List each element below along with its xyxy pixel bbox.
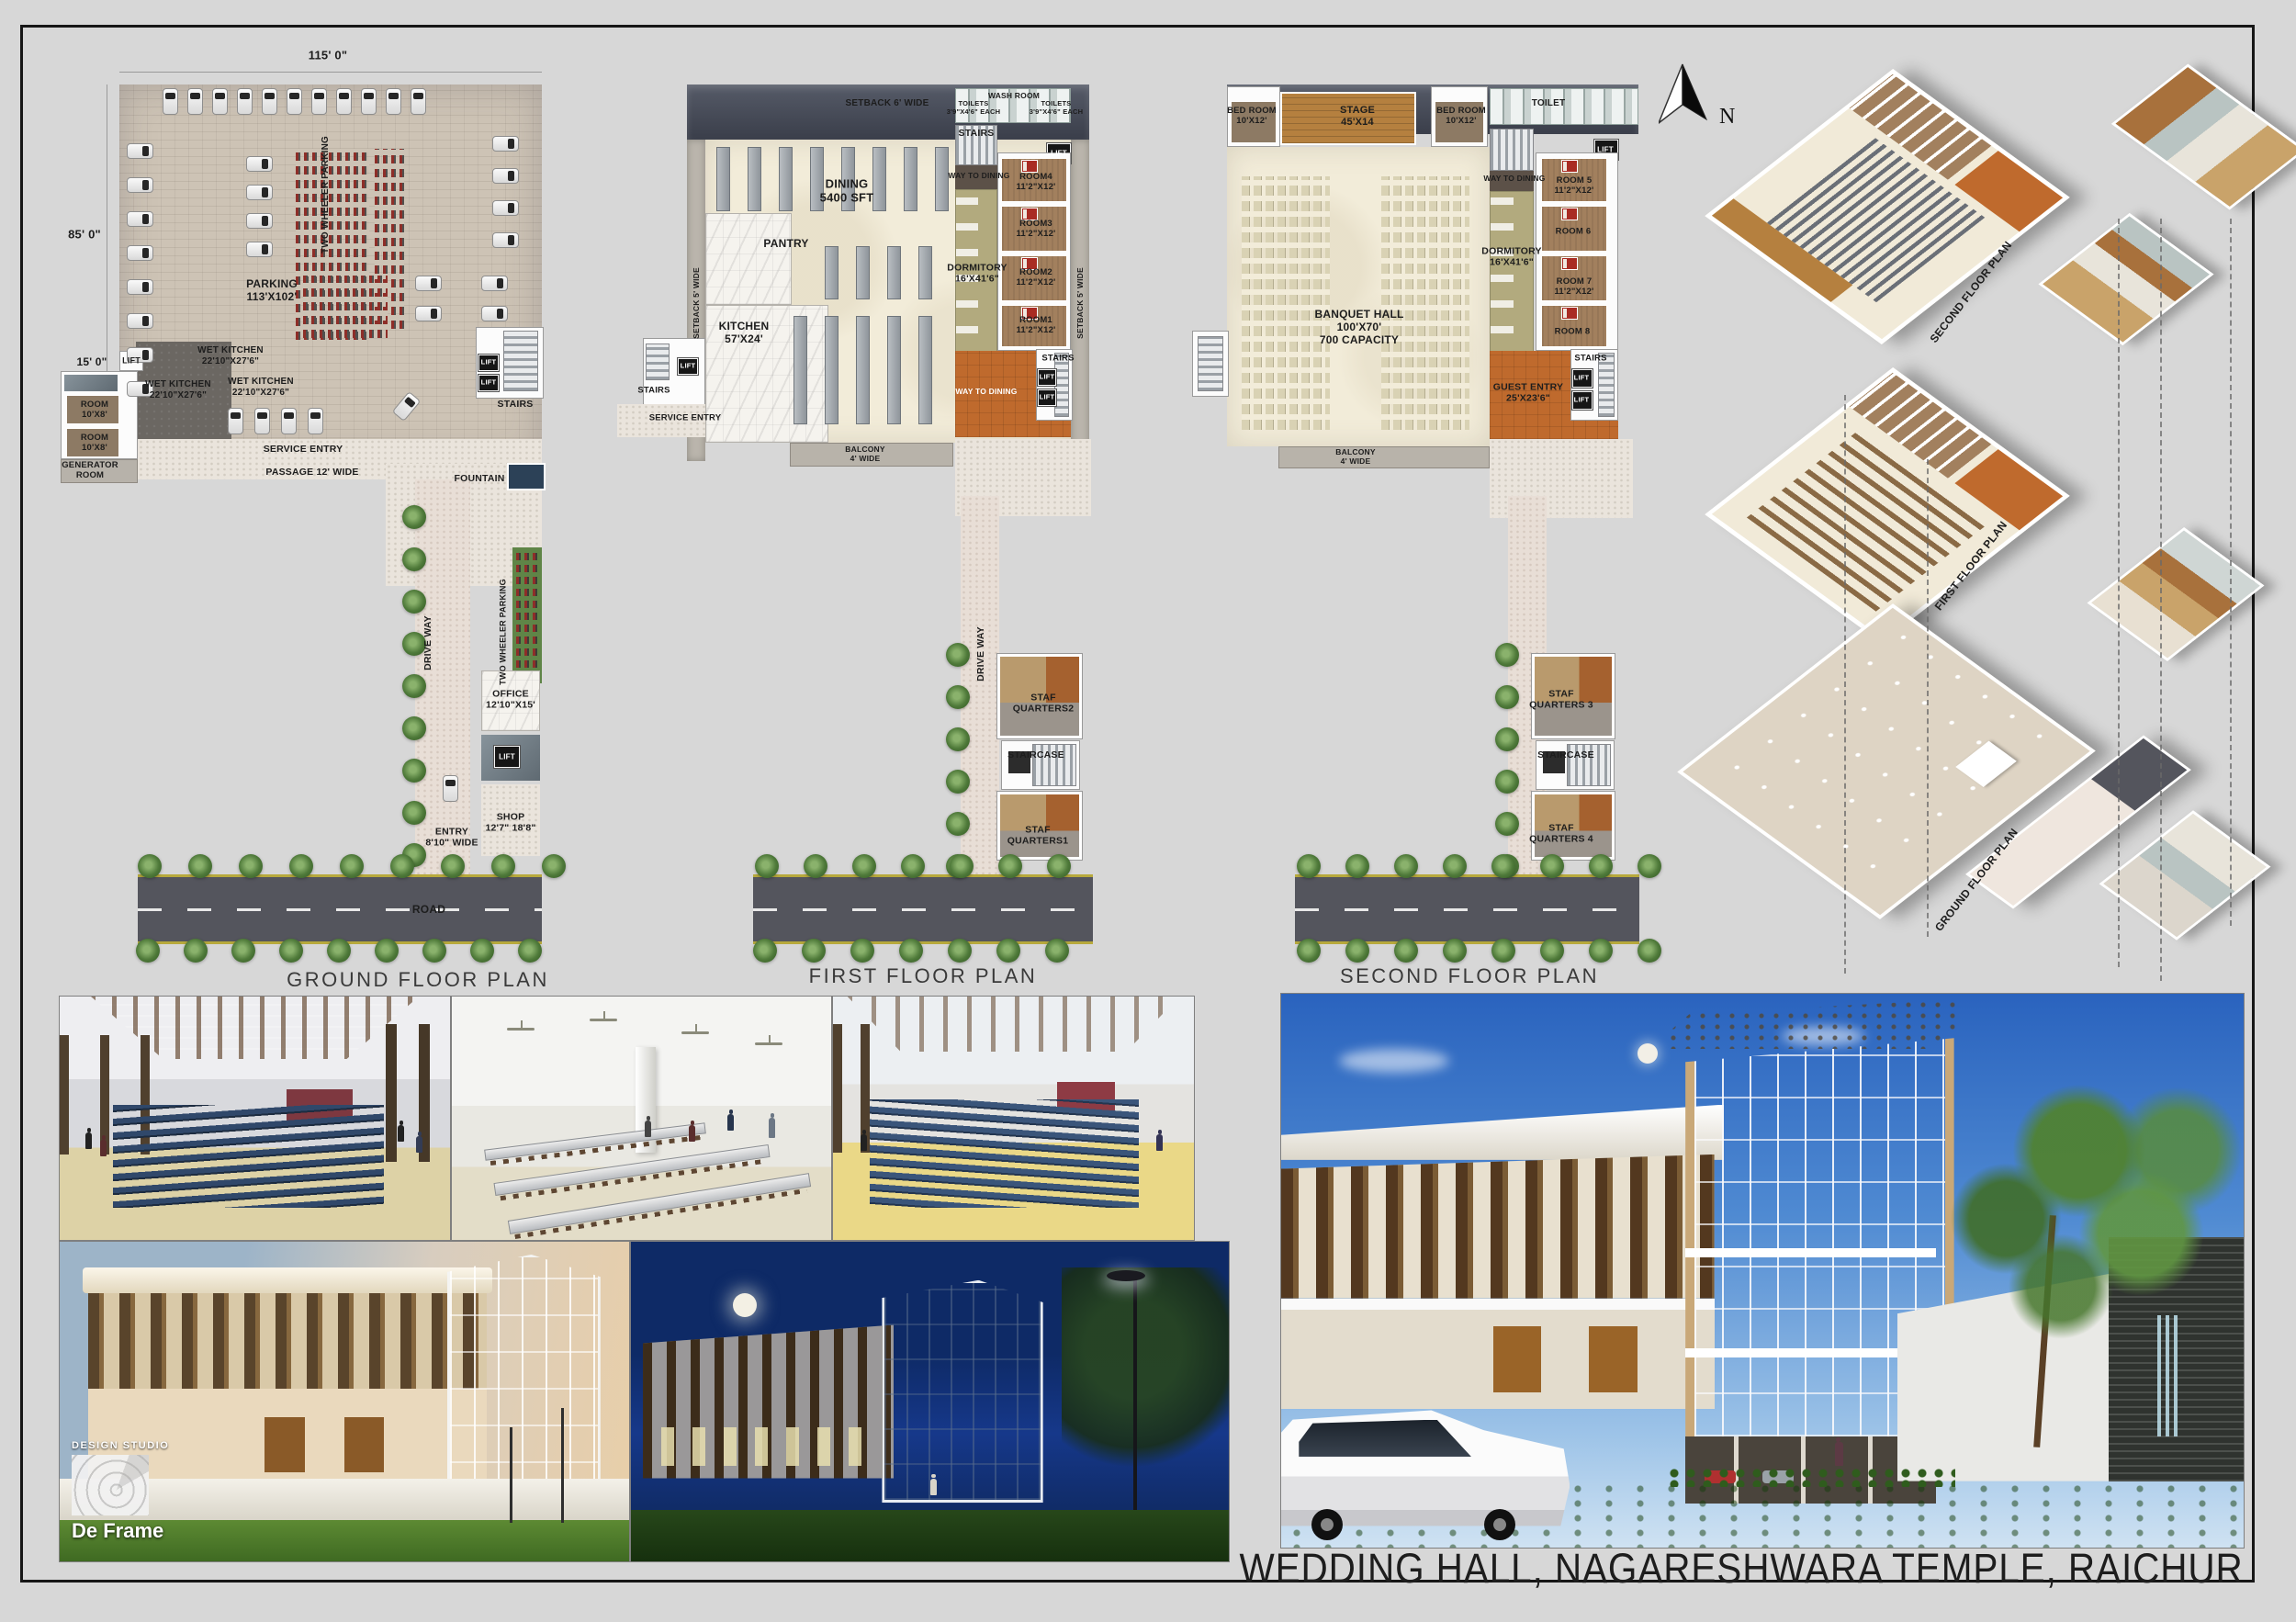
palm-tree	[1495, 685, 1519, 709]
palm-tree	[1638, 854, 1661, 878]
palm-tree	[402, 759, 426, 783]
ceiling-fan-icon	[681, 1031, 709, 1034]
ceiling-coffers	[848, 997, 1180, 1052]
lawn-night	[631, 1510, 1229, 1561]
dining-table	[825, 246, 838, 299]
dining-table	[918, 316, 932, 424]
logo-spiral-icon	[72, 1455, 149, 1515]
palm-tree	[1495, 812, 1519, 836]
dining-table	[887, 316, 901, 424]
stairs	[1490, 129, 1534, 171]
door	[1589, 1326, 1637, 1392]
palm-tree	[996, 939, 1020, 963]
plan-label: BALCONY 4' WIDE	[1335, 447, 1375, 466]
plan-label: SETBACK 6' WIDE	[846, 98, 929, 109]
ceiling-fan-icon	[507, 1028, 535, 1031]
palm-tree	[1297, 854, 1321, 878]
palm-tree	[422, 939, 446, 963]
left-wing-parapet	[1281, 1105, 1724, 1160]
door	[1493, 1326, 1541, 1392]
moon	[733, 1293, 757, 1317]
palm-tree	[279, 939, 303, 963]
palm-tree	[753, 939, 777, 963]
plan-label: SERVICE ENTRY	[649, 412, 722, 422]
palm-tree	[802, 939, 826, 963]
car	[127, 279, 153, 295]
plan-label: WET KITCHEN 22'10"X27'6"	[145, 379, 211, 401]
person	[1156, 1134, 1163, 1151]
plan-label: STAGE 45'X14	[1340, 105, 1375, 129]
palm-tree	[136, 939, 160, 963]
car	[336, 88, 352, 115]
plan-label: ROOM 8	[1555, 326, 1591, 336]
dining-table	[748, 147, 761, 211]
palm-tree	[1589, 939, 1613, 963]
dining-table	[716, 147, 730, 211]
plan-label: PASSAGE 12' WIDE	[265, 467, 358, 478]
lit-windows	[661, 1427, 876, 1466]
car	[254, 408, 270, 434]
plan-label: STAIRS	[1041, 353, 1074, 363]
plan-label: STAF QUARTERS2	[1013, 693, 1075, 715]
ceiling-fan-icon	[755, 1042, 782, 1045]
palm-tree	[946, 643, 970, 667]
presentation-board: N GROUND FLOOR PLAN FIRS	[0, 0, 2296, 1622]
road	[138, 874, 542, 944]
render-interior-banquet-1	[60, 997, 450, 1240]
car	[492, 200, 519, 216]
palm-tree	[402, 801, 426, 825]
palm-tree	[231, 939, 255, 963]
car	[127, 245, 153, 261]
suv-wheel	[1311, 1509, 1343, 1540]
plan-label: LIFT	[481, 379, 497, 388]
palm-tree	[1491, 854, 1515, 878]
car	[127, 177, 153, 193]
projection-line	[1844, 395, 1846, 974]
palm-tree	[1047, 854, 1071, 878]
plan-label: SHOP 12'7" 18'8"	[485, 812, 535, 835]
palm-tree	[1345, 854, 1369, 878]
palm-tree	[402, 505, 426, 529]
palm-tree	[1045, 939, 1069, 963]
car	[492, 168, 519, 184]
person	[689, 1125, 695, 1142]
plan-label: ROOM 7 11'2"X12'	[1554, 276, 1593, 297]
chair-rows	[1381, 176, 1469, 430]
caption-first-floor: FIRST FLOOR PLAN	[739, 964, 1107, 988]
person	[398, 1125, 404, 1142]
palm-tree	[390, 854, 414, 878]
person	[85, 1132, 92, 1149]
palm-tree	[946, 770, 970, 794]
person	[861, 1134, 867, 1151]
plan-label: STAF QUARTERS 3	[1529, 689, 1593, 712]
palm-tree	[184, 939, 208, 963]
moon	[1638, 1043, 1658, 1064]
car	[308, 408, 323, 434]
projection-line	[2160, 219, 2162, 981]
caption-ground-floor: GROUND FLOOR PLAN	[234, 968, 602, 992]
palm-tree	[948, 939, 972, 963]
palm-tree	[402, 674, 426, 698]
palm-tree	[946, 685, 970, 709]
bed	[1561, 160, 1578, 173]
plan-label: ROOM 10'X8'	[81, 400, 108, 420]
plan-label: BED ROOM 10'X12'	[1227, 106, 1277, 126]
glassdark	[64, 375, 118, 391]
plan-label: ENTRY 8'10" WIDE	[425, 827, 478, 850]
plan-label: STAIRS	[637, 385, 670, 395]
plan-label: ROOM2 11'2"X12'	[1016, 267, 1055, 287]
dining-table	[825, 316, 838, 424]
palm-tree	[239, 854, 263, 878]
plan-label: DRIVE WAY	[422, 615, 433, 670]
palm-tree	[1495, 770, 1519, 794]
caption-second-floor: SECOND FLOOR PLAN	[1286, 964, 1653, 988]
plan-label: ROOM 5 11'2"X12'	[1554, 175, 1593, 196]
dining-table	[793, 316, 807, 424]
car	[246, 185, 273, 200]
car	[246, 156, 273, 172]
plan-label: ROOM 10'X8'	[81, 433, 108, 453]
car	[281, 408, 297, 434]
cloud	[1339, 1049, 1449, 1073]
palm-tree	[899, 939, 923, 963]
dining-table	[484, 1122, 706, 1160]
plan-label: SETBACK 5' WIDE	[692, 267, 701, 339]
palm-tree	[327, 939, 351, 963]
road	[753, 874, 1093, 944]
palm-tree	[1297, 939, 1321, 963]
car	[311, 88, 327, 115]
left-wing-louvres	[1281, 1155, 1715, 1299]
car	[415, 276, 442, 291]
projection-line	[1927, 459, 1929, 937]
plan-label: WET KITCHEN 22'10"X27'6"	[197, 345, 264, 367]
car	[287, 88, 302, 115]
plan-label: FOUNTAIN	[454, 473, 504, 484]
suv-wheel	[1484, 1509, 1515, 1540]
pantry	[705, 213, 792, 305]
building-roof-slab	[83, 1267, 492, 1293]
plan-label: LIFT	[122, 356, 141, 366]
plan-label: SETBACK 5' WIDE	[1075, 267, 1085, 339]
tree-foliage	[1878, 1038, 2244, 1414]
dining-table	[856, 316, 870, 424]
lamp-post	[510, 1427, 512, 1523]
logo-studio-text: DESIGN STUDIO	[72, 1440, 169, 1451]
plan-label: WASH ROOM	[988, 91, 1040, 100]
palm-tree	[1345, 939, 1369, 963]
car	[386, 88, 401, 115]
car	[361, 88, 377, 115]
palm-tree	[1638, 939, 1661, 963]
palm-tree	[491, 854, 515, 878]
car	[415, 306, 442, 321]
palm-tree	[1589, 854, 1613, 878]
person	[727, 1114, 734, 1131]
palm-tree	[470, 939, 494, 963]
palm-tree	[518, 939, 542, 963]
plan-label: PANTRY	[763, 237, 808, 250]
north-label: N	[1719, 105, 1735, 129]
project-title: WEDDING HALL, NAGARESHWARA TEMPLE, RAICH…	[1240, 1545, 2244, 1593]
projection-line	[2230, 219, 2232, 926]
palm-tree	[441, 854, 465, 878]
dining-table	[887, 246, 901, 299]
plan-label: BANQUET HALL 100'X70' 700 CAPACITY	[1314, 308, 1403, 346]
plan-label: BALCONY 4' WIDE	[845, 445, 884, 463]
plan-label: 15' 0"	[76, 355, 107, 368]
car	[127, 211, 153, 227]
palm-tree	[998, 854, 1022, 878]
plan-label: TOILETS 3'9"X4'6" EACH	[947, 100, 1001, 117]
dimline-h	[119, 72, 542, 73]
palm-tree	[1491, 939, 1515, 963]
stairsV2	[646, 344, 670, 380]
palm-tree	[1540, 854, 1564, 878]
car	[127, 313, 153, 329]
plan-label: LIFT	[499, 752, 515, 760]
plan-label: LIFT	[1574, 375, 1590, 383]
plan-label: DRIVE WAY	[975, 626, 986, 681]
road	[1295, 874, 1639, 944]
street-lamp	[1133, 1274, 1137, 1523]
palm-tree	[946, 812, 970, 836]
palm-tree	[402, 590, 426, 614]
logo-brand-text: De Frame	[72, 1519, 169, 1543]
plan-label: GENERATOR ROOM	[62, 460, 118, 480]
person	[416, 1136, 422, 1153]
plan-label: TWO WHEELER PARKING	[499, 579, 509, 685]
plan-label: LIFT	[1597, 145, 1614, 153]
plan-label: STAIRS	[1574, 353, 1606, 363]
plan-label: STAIRCASE	[1537, 749, 1594, 760]
palm-tree	[850, 939, 874, 963]
plan-label: LIFT	[1040, 394, 1055, 402]
plan-label: WAY TO DINING	[948, 171, 1009, 180]
plan-label: STAIRS	[498, 399, 534, 410]
car	[262, 88, 277, 115]
shrub-row	[1666, 1468, 1954, 1487]
lamp-post	[561, 1408, 564, 1523]
door	[264, 1417, 304, 1471]
door	[344, 1417, 384, 1471]
ceiling-fan-icon	[590, 1019, 617, 1021]
plan-label: STAF QUARTERS 4	[1529, 823, 1593, 846]
plan-label: GUEST ENTRY 25'X23'6"	[1493, 382, 1564, 405]
plan-label: STAIRS	[959, 128, 995, 139]
render-interior-dining	[452, 997, 831, 1240]
plan-label: TOILET	[1532, 98, 1566, 109]
palm-tree	[1495, 727, 1519, 751]
person	[930, 1479, 937, 1495]
car	[212, 88, 228, 115]
plan-label: ROOM4 11'2"X12'	[1016, 172, 1055, 192]
palm-tree	[852, 854, 876, 878]
palm-tree	[340, 854, 364, 878]
car	[492, 232, 519, 248]
glass-tower-lit	[882, 1280, 1042, 1504]
car	[228, 408, 243, 434]
bed	[1561, 257, 1578, 270]
person	[1835, 1442, 1843, 1466]
car	[492, 136, 519, 152]
car	[481, 276, 508, 291]
plan-label: DORMITORY 16'X41'6"	[947, 263, 1007, 286]
projection-line	[2118, 219, 2120, 967]
car	[163, 88, 178, 115]
stairsV	[503, 331, 538, 391]
bed	[1561, 208, 1578, 220]
plan-label: KITCHEN 57'X24'	[719, 320, 770, 345]
plan-label: BED ROOM 10'X12'	[1436, 106, 1486, 126]
two-wheeler-parking	[303, 276, 388, 338]
palm-tree	[138, 854, 162, 878]
car	[237, 88, 253, 115]
render-exterior-night	[631, 1242, 1229, 1561]
plan-label: ROOM3 11'2"X12'	[1016, 219, 1055, 239]
suv	[1281, 1403, 1570, 1537]
car	[246, 242, 273, 257]
car	[187, 88, 203, 115]
person	[100, 1140, 107, 1156]
palm-tree	[1495, 643, 1519, 667]
car	[443, 775, 458, 802]
palm-tree	[542, 854, 566, 878]
palm-tree	[289, 854, 313, 878]
palm-tree	[950, 854, 974, 878]
plan-label: DINING 5400 SFT	[820, 177, 874, 206]
balcony	[1278, 446, 1490, 468]
plan-label: LIFT	[1574, 397, 1590, 405]
palm-tree	[375, 939, 399, 963]
plan-label: STAF QUARTERS1	[1007, 825, 1069, 848]
dining-table	[904, 147, 917, 211]
palm-tree	[1394, 939, 1418, 963]
plan-label: SERVICE ENTRY	[264, 444, 343, 455]
render-interior-banquet-2	[833, 997, 1194, 1240]
render-exterior-hero	[1281, 994, 2244, 1548]
plan-label: WAY TO DINING	[1483, 174, 1545, 183]
car	[127, 143, 153, 159]
car	[411, 88, 426, 115]
chair-rows	[1242, 176, 1330, 430]
plan-label: LIFT	[1040, 374, 1055, 382]
palm-tree	[402, 716, 426, 740]
plan-label: TWO WHEELER PARKING	[321, 136, 332, 253]
bed	[1561, 307, 1578, 320]
car	[246, 213, 273, 229]
palm-tree	[1394, 854, 1418, 878]
palm-tree	[402, 547, 426, 571]
dining-table	[935, 147, 949, 211]
dining-table	[918, 246, 932, 299]
plan-label: LIFT	[681, 363, 696, 371]
dining-table	[872, 147, 886, 211]
fountain	[507, 463, 546, 490]
stairsV2	[1198, 336, 1223, 391]
plan-label: WET KITCHEN 22'10"X27'6"	[228, 377, 294, 399]
car	[481, 306, 508, 321]
dining-table	[779, 147, 793, 211]
palm-tree	[188, 854, 212, 878]
person	[769, 1118, 775, 1138]
palm-tree	[1540, 939, 1564, 963]
plan-label: 85' 0"	[68, 227, 101, 241]
palm-tree	[755, 854, 779, 878]
palm-tree	[1443, 939, 1467, 963]
dining-table	[856, 246, 870, 299]
plan-label: TOILETS 3'9"X4'6" EACH	[1030, 100, 1084, 117]
plan-label: PARKING 113'X102'	[246, 277, 298, 303]
design-studio-logo: DESIGN STUDIO De Frame	[72, 1440, 169, 1543]
plan-label: OFFICE 12'10"X15'	[486, 689, 535, 712]
plan-label: STAIRCASE	[1007, 749, 1064, 760]
chair-rows	[113, 1105, 384, 1208]
tree-silhouette	[1062, 1267, 1229, 1472]
building-louvre-band	[88, 1293, 487, 1392]
plan-label: LIFT	[481, 359, 497, 367]
palm-tree	[946, 727, 970, 751]
chair-rows	[870, 1099, 1139, 1208]
glass-tower	[447, 1255, 601, 1503]
plan-label: ROOM1 11'2"X12'	[1016, 315, 1055, 335]
person	[645, 1121, 651, 1137]
plan-label: ROOM 6	[1556, 226, 1592, 236]
plan-label: ROAD	[412, 903, 445, 916]
north-arrow-icon: N	[1659, 59, 1750, 134]
palm-tree	[1443, 854, 1467, 878]
plan-label: WAY TO DINING	[955, 387, 1017, 396]
palm-tree	[804, 854, 827, 878]
plan-label: LIFT	[1051, 149, 1067, 157]
palm-tree	[901, 854, 925, 878]
plan-label: DORMITORY 16'X41'6"	[1481, 246, 1541, 269]
two-wheeler-parking	[516, 551, 540, 680]
plan-label: 115' 0"	[309, 48, 347, 62]
